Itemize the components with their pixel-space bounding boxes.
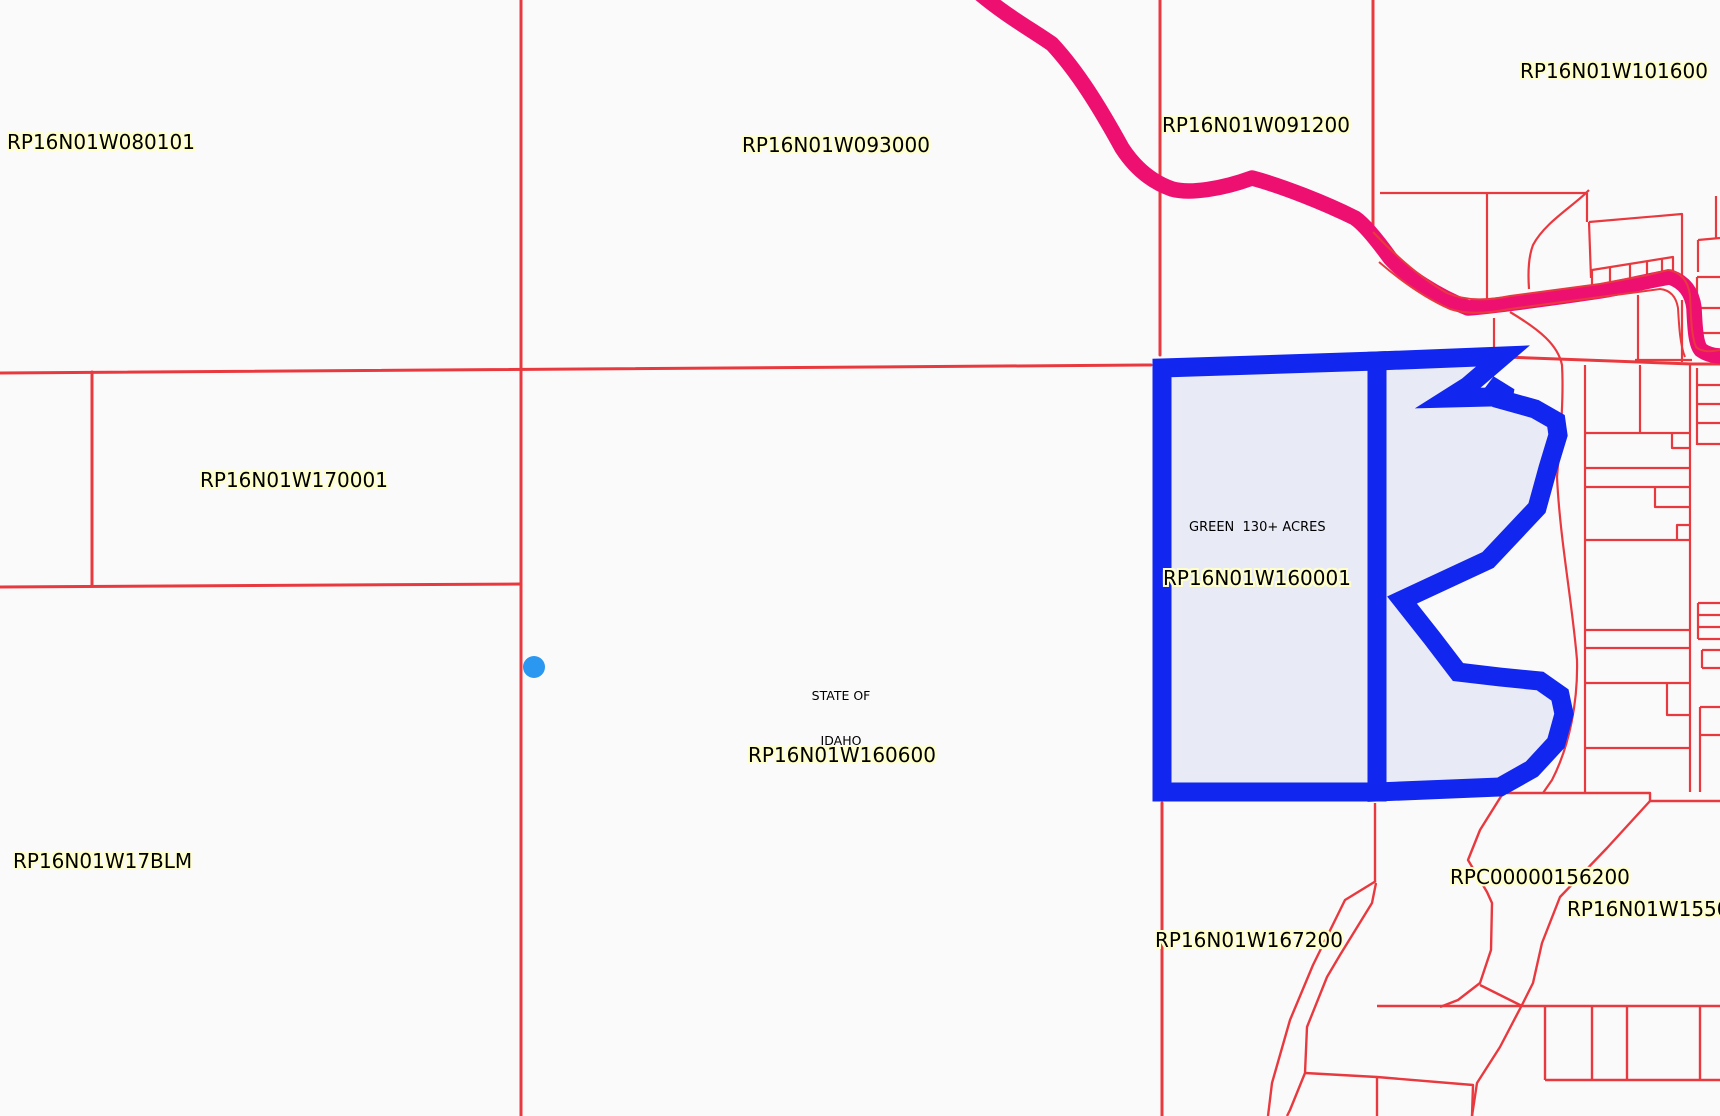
parcel-label-rp16n01w17blm: RP16N01W17BLM (13, 849, 192, 873)
parcel-label-rp16n01w167200: RP16N01W167200 (1155, 928, 1343, 952)
parcel-label-rp16n01w101600: RP16N01W101600 (1520, 59, 1708, 83)
parcel-label-rp16n01w093000: RP16N01W093000 (742, 133, 930, 157)
parcel-label-rp16n01w15500: RP16N01W15500 (1567, 897, 1720, 921)
state-land-label-line2: IDAHO (786, 733, 896, 748)
parcel-label-rp16n01w080101: RP16N01W080101 (7, 130, 195, 154)
state-land-label-line1: STATE OF (786, 688, 896, 703)
parcel-label-rp16n01w170001: RP16N01W170001 (200, 468, 388, 492)
map-canvas[interactable]: RP16N01W080101 RP16N01W093000 RP16N01W09… (0, 0, 1720, 1116)
parcel-map-graphics (0, 0, 1720, 1116)
highlighted-parcel-note: GREEN 130+ ACRES (1189, 520, 1326, 536)
highlighted-parcel-id-label: RP16N01W160001 (1163, 566, 1351, 590)
parcel-label-rpc00000156200: RPC00000156200 (1450, 865, 1630, 889)
parcel-label-rp16n01w091200: RP16N01W091200 (1162, 113, 1350, 137)
selected-point-marker[interactable] (523, 656, 545, 678)
state-land-label: STATE OF IDAHO (786, 658, 896, 778)
